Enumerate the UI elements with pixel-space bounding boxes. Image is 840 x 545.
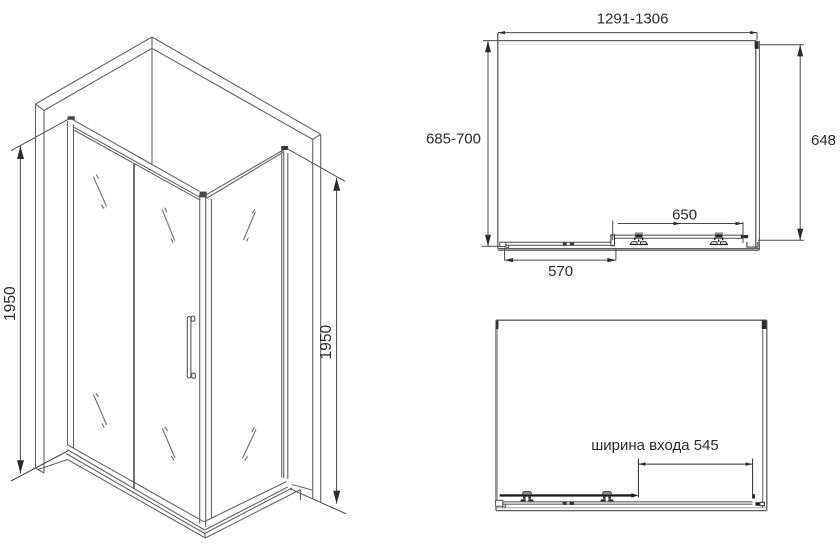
svg-text:1950: 1950	[2, 286, 19, 321]
svg-text:648: 648	[811, 132, 836, 149]
svg-text:1291-1306: 1291-1306	[597, 10, 669, 27]
svg-text:650: 650	[672, 207, 697, 224]
svg-text:1950: 1950	[318, 324, 335, 359]
svg-text:ширина входа 545: ширина входа 545	[591, 437, 719, 454]
svg-text:570: 570	[548, 263, 573, 280]
svg-text:685-700: 685-700	[426, 131, 481, 148]
